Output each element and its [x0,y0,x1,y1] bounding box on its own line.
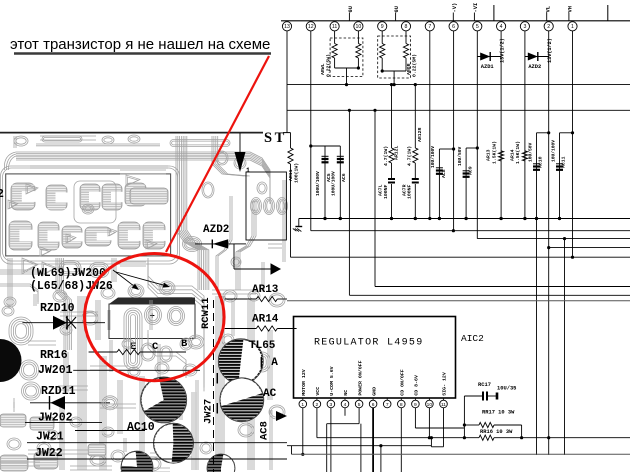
svg-text:2: 2 [0,188,4,201]
svg-text:REGULATOR L4959: REGULATOR L4959 [314,337,424,348]
svg-text:|: | [214,403,221,415]
svg-text:100NF: 100NF [407,184,413,199]
svg-text:AR14: AR14 [509,149,515,161]
svg-text:2: 2 [316,402,319,408]
svg-text:7: 7 [386,402,389,408]
svg-text:CD 8-6V: CD 8-6V [414,375,420,396]
svg-text:этот транзистор я не нашел на: этот транзистор я не нашел на схеме [10,36,270,53]
svg-text:10U/35: 10U/35 [497,386,516,392]
svg-text:10: 10 [356,24,362,30]
svg-text:12: 12 [308,24,314,30]
svg-text:RR16 10 3W: RR16 10 3W [480,429,513,435]
svg-text:AC9: AC9 [467,166,473,175]
svg-text:0.22(5M): 0.22(5M) [411,54,417,77]
svg-text:10: 10 [427,402,433,408]
svg-text:ARWL: ARWL [320,63,326,75]
svg-text:1: 1 [301,402,304,408]
svg-text:0U: 0U [348,6,354,12]
svg-text:RZD11: RZD11 [41,385,76,398]
svg-text:(WL69)JW200: (WL69)JW200 [30,267,106,280]
svg-text:JW201: JW201 [38,364,73,377]
svg-text:AC10: AC10 [538,156,544,168]
svg-text:11: 11 [441,402,446,408]
svg-text:0U: 0U [394,6,400,12]
svg-text:13V(1/2): 13V(1/2) [547,38,553,63]
svg-text:NC: NC [343,390,349,396]
svg-text:3: 3 [523,24,526,30]
svg-text:AZD1: AZD1 [481,64,494,70]
svg-text:AC6: AC6 [341,173,347,182]
svg-text:4: 4 [500,24,503,30]
svg-text:VCC: VCC [315,387,321,396]
svg-text:JW27: JW27 [203,399,215,424]
svg-text:9: 9 [414,402,417,408]
svg-text:AC10: AC10 [127,421,155,434]
svg-text:100NF: 100NF [383,184,389,199]
svg-text:POWER ON/OFF: POWER ON/OFF [357,360,363,395]
svg-text:AR12R: AR12R [417,127,423,142]
svg-text:TL65: TL65 [249,340,276,352]
svg-text:RR17 10 3W: RR17 10 3W [482,410,515,416]
svg-text:10U/100V: 10U/100V [550,140,556,162]
svg-text:AR13: AR13 [252,284,279,296]
svg-text:CD ON/OFF: CD ON/OFF [399,369,405,395]
svg-text:-VI: -VI [473,3,479,13]
svg-text:100U/100V: 100U/100V [331,171,337,196]
svg-text:RC17: RC17 [478,382,491,388]
svg-text:B: B [181,338,188,350]
svg-text:1: 1 [571,24,574,30]
svg-text:VL: VL [545,6,551,12]
svg-text:9: 9 [381,24,384,30]
svg-text:AZD2: AZD2 [203,224,229,236]
svg-text:| A: | A [258,357,278,369]
svg-text:JW202: JW202 [38,412,73,425]
svg-text:1: 1 [246,167,250,174]
svg-text:JW22: JW22 [35,447,63,460]
svg-text:7: 7 [428,24,431,30]
svg-text:AC7L: AC7L [378,184,384,196]
svg-text:JW21: JW21 [36,431,64,444]
svg-text:AR11: AR11 [288,169,294,181]
svg-text:6: 6 [372,402,375,408]
svg-text:2: 2 [547,24,550,30]
svg-text:13V(1/2): 13V(1/2) [500,38,506,63]
svg-text:10U/100V: 10U/100V [430,146,436,168]
svg-text:|: | [214,373,221,385]
svg-text:VH: VH [568,6,574,12]
svg-text:1.5K(1W): 1.5K(1W) [491,141,497,164]
svg-text:5: 5 [358,402,361,408]
svg-text:SIG- 12V: SIG- 12V [442,372,448,396]
svg-text:5: 5 [476,24,479,30]
svg-text:AC11: AC11 [561,156,567,168]
svg-text:10U/50V: 10U/50V [527,142,533,162]
svg-text:4.7(1W): 4.7(1W) [407,146,413,166]
svg-text:10U/50V: 10U/50V [457,146,463,166]
svg-text:AIC2: AIC2 [461,333,484,344]
svg-text:0.22(5W): 0.22(5W) [326,54,332,77]
svg-text:3: 3 [330,402,333,408]
svg-text:AC8: AC8 [441,169,447,178]
svg-text:4: 4 [344,402,347,408]
svg-text:6: 6 [452,24,455,30]
svg-text:U-COM 5.6V: U-COM 5.6V [329,366,335,395]
svg-text:RR16: RR16 [40,349,68,362]
svg-text:AR13: AR13 [486,149,492,161]
svg-text:AR12L: AR12L [393,145,399,160]
svg-text:RZD10: RZD10 [40,302,75,315]
svg-text:(L65/68)JW26: (L65/68)JW26 [30,280,113,293]
svg-text:AC7R: AC7R [402,184,408,196]
svg-text:MOTOR 12V: MOTOR 12V [301,369,307,395]
svg-text:AC: AC [263,388,277,400]
svg-text:13: 13 [284,24,290,30]
svg-text:100(1W): 100(1W) [293,163,299,183]
svg-text:RCW11: RCW11 [200,297,212,329]
svg-text:GND: GND [371,387,377,396]
svg-text:ARGR: ARGR [406,63,412,75]
svg-text:AZD2: AZD2 [528,64,541,70]
svg-text:AR14: AR14 [252,314,279,326]
svg-text:4.7(1W): 4.7(1W) [383,146,389,166]
svg-text:8: 8 [405,24,408,30]
svg-text:8: 8 [400,402,403,408]
svg-text:1.5K(1W): 1.5K(1W) [515,141,521,164]
svg-text:11: 11 [332,24,337,30]
svg-text:-V): -V) [452,3,458,13]
svg-text:100U/100V: 100U/100V [315,171,321,196]
svg-text:AC8: AC8 [259,421,271,440]
